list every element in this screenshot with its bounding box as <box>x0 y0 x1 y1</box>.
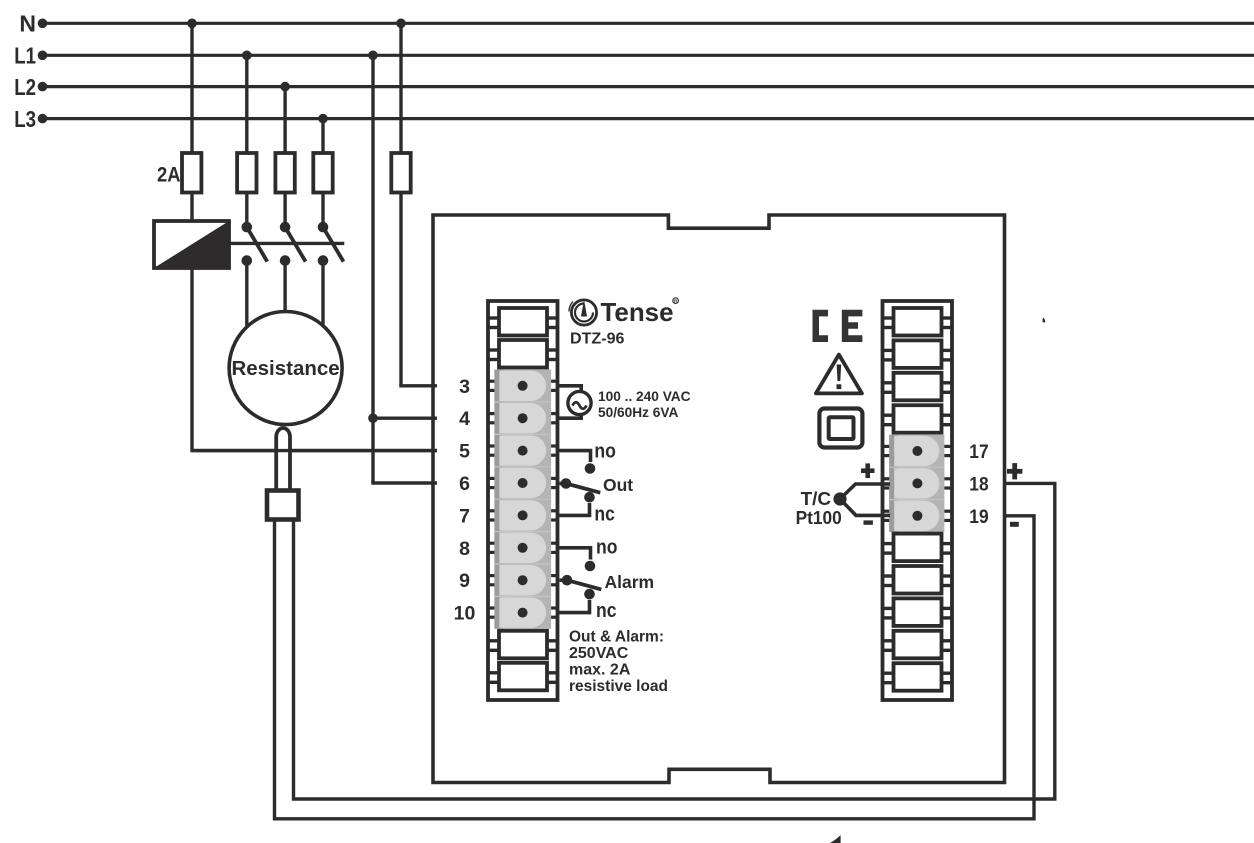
svg-text:2A: 2A <box>157 163 181 187</box>
svg-text:Pt100: Pt100 <box>796 508 842 528</box>
svg-text:L2: L2 <box>14 74 36 100</box>
svg-text:Tense: Tense <box>601 297 674 327</box>
svg-text:7: 7 <box>459 505 470 527</box>
svg-text:17: 17 <box>969 441 988 463</box>
svg-text:5: 5 <box>459 441 470 463</box>
svg-text:L3: L3 <box>14 106 36 132</box>
svg-text:18: 18 <box>969 473 988 495</box>
svg-text:250VAC: 250VAC <box>569 645 629 662</box>
svg-text:Out: Out <box>603 475 633 495</box>
svg-text:9: 9 <box>459 570 470 592</box>
svg-text:Alarm: Alarm <box>605 572 655 592</box>
svg-text:no: no <box>594 441 616 463</box>
svg-text:100 .. 240 VAC: 100 .. 240 VAC <box>598 389 691 404</box>
svg-text:8: 8 <box>459 538 470 560</box>
svg-text:L1: L1 <box>14 43 36 69</box>
svg-text:nc: nc <box>596 600 617 622</box>
svg-text:max. 2A: max. 2A <box>569 662 631 679</box>
svg-text:Out & Alarm:: Out & Alarm: <box>569 628 664 645</box>
svg-text:no: no <box>596 536 618 558</box>
svg-text:50/60Hz 6VA: 50/60Hz 6VA <box>598 405 679 420</box>
svg-text:Resistance: Resistance <box>231 357 339 380</box>
svg-text:resistive load: resistive load <box>569 678 668 695</box>
svg-text:N: N <box>19 11 36 37</box>
svg-text:6: 6 <box>459 473 470 495</box>
svg-text:3: 3 <box>459 376 470 398</box>
svg-text:19: 19 <box>969 506 988 528</box>
svg-text:T/C: T/C <box>801 488 832 509</box>
svg-text:DTZ-96: DTZ-96 <box>570 331 625 348</box>
svg-text:nc: nc <box>594 503 615 525</box>
svg-text:10: 10 <box>454 603 476 625</box>
svg-text:4: 4 <box>459 408 470 430</box>
